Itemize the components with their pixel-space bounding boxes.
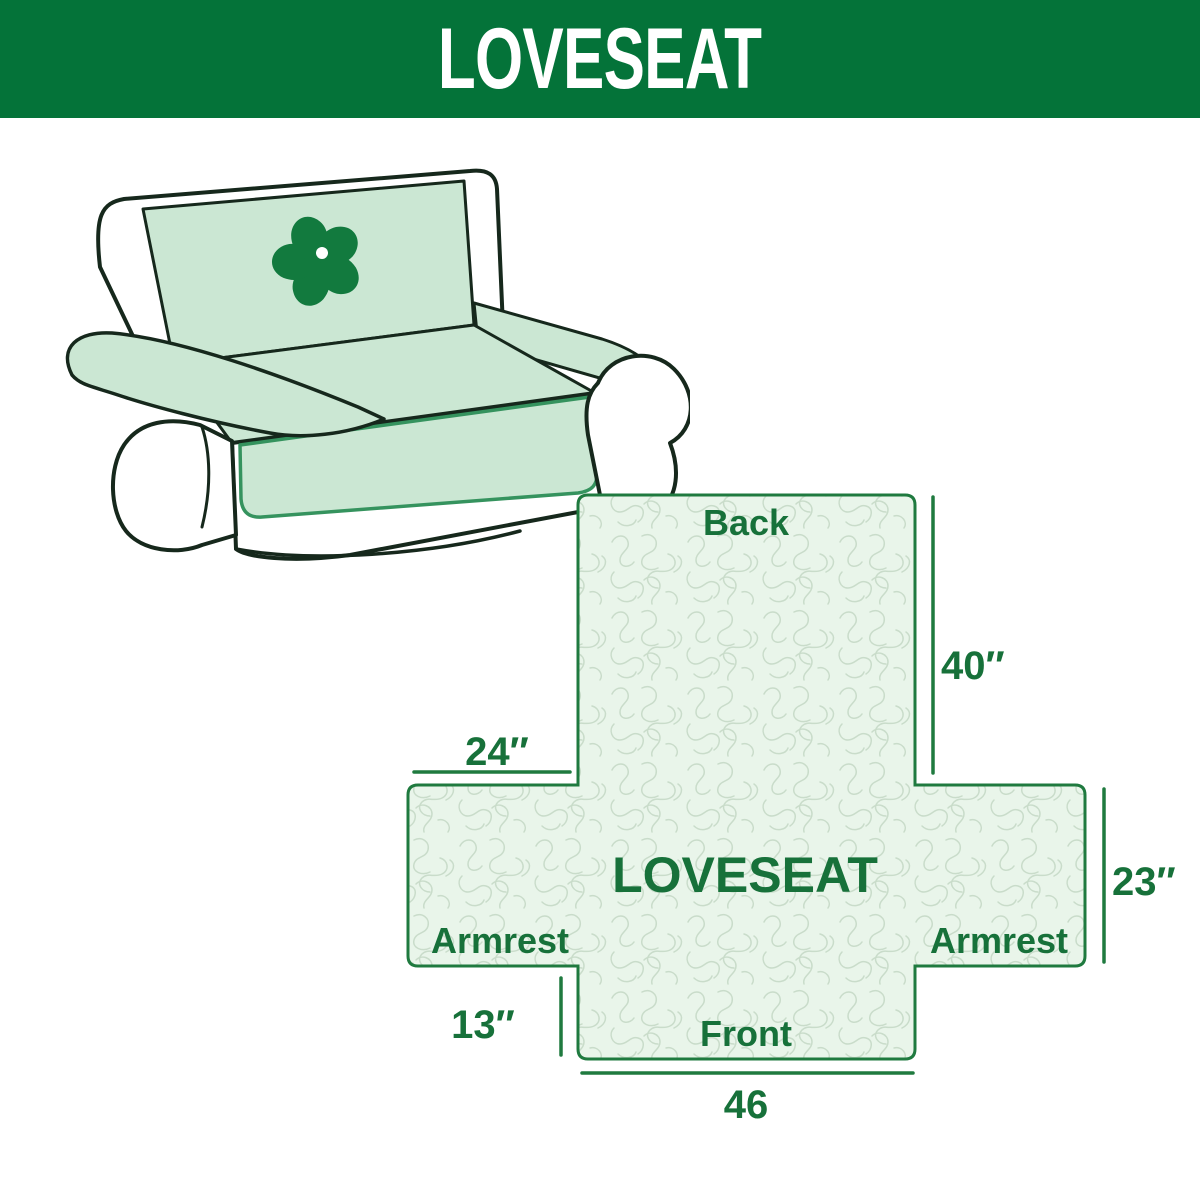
dim-front-drop: 13″ bbox=[418, 1003, 548, 1047]
front-label: Front bbox=[646, 1014, 846, 1054]
cover-outline bbox=[408, 495, 1085, 1059]
armrest-left-label: Armrest bbox=[400, 921, 600, 961]
dim-back-height: 40″ bbox=[941, 644, 1061, 688]
dim-armrest-height: 23″ bbox=[1112, 860, 1200, 904]
armrest-right-label: Armrest bbox=[899, 921, 1099, 961]
page: LOVESEAT bbox=[0, 0, 1200, 1200]
cover-diagram bbox=[0, 0, 1200, 1200]
cover-center-label: LOVESEAT bbox=[595, 848, 895, 903]
dim-back-side-width: 24″ bbox=[397, 730, 597, 774]
dim-front-width: 46 bbox=[646, 1083, 846, 1127]
back-label: Back bbox=[646, 503, 846, 543]
